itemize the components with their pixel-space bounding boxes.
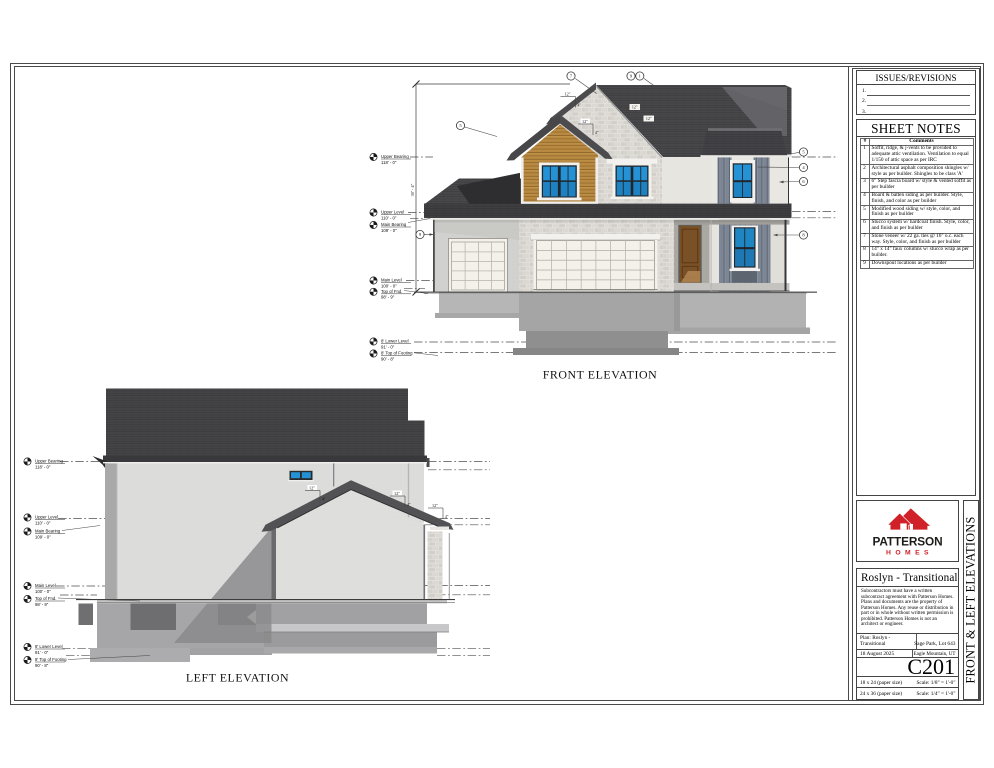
svg-text:Upper Level: Upper Level bbox=[35, 515, 58, 520]
svg-text:91' - 0": 91' - 0" bbox=[381, 344, 395, 349]
svg-text:109' - 0": 109' - 0" bbox=[381, 228, 397, 233]
svg-text:12": 12" bbox=[565, 91, 571, 96]
svg-text:100' - 0": 100' - 0" bbox=[35, 589, 51, 594]
svg-text:8' Top of Footing: 8' Top of Footing bbox=[381, 351, 413, 356]
svg-text:100' - 0": 100' - 0" bbox=[381, 283, 397, 288]
svg-text:12": 12" bbox=[632, 105, 638, 110]
svg-text:FRONT ELEVATION: FRONT ELEVATION bbox=[543, 368, 658, 382]
svg-text:118' - 0": 118' - 0" bbox=[35, 464, 51, 469]
svg-text:Top of Fnd.: Top of Fnd. bbox=[381, 289, 403, 294]
svg-text:4": 4" bbox=[407, 503, 411, 507]
svg-text:90' - 8": 90' - 8" bbox=[381, 356, 395, 361]
svg-text:110' - 0": 110' - 0" bbox=[35, 520, 51, 525]
svg-text:4": 4" bbox=[322, 498, 326, 502]
svg-text:98' - 9": 98' - 9" bbox=[35, 602, 49, 607]
svg-text:98' - 9": 98' - 9" bbox=[381, 295, 395, 300]
svg-text:Upper Level: Upper Level bbox=[381, 210, 404, 215]
svg-text:110' - 0": 110' - 0" bbox=[381, 215, 397, 220]
svg-text:12": 12" bbox=[394, 491, 400, 496]
svg-text:8' Top of Footing: 8' Top of Footing bbox=[35, 657, 67, 662]
svg-text:8' Lower Level: 8' Lower Level bbox=[35, 644, 63, 649]
svg-text:LEFT ELEVATION: LEFT ELEVATION bbox=[186, 671, 289, 685]
svg-text:12": 12" bbox=[582, 119, 588, 124]
svg-text:Top of Fnd.: Top of Fnd. bbox=[35, 596, 57, 601]
svg-text:4": 4" bbox=[445, 515, 449, 519]
svg-text:118' - 0": 118' - 0" bbox=[381, 160, 397, 165]
svg-text:4": 4" bbox=[595, 131, 599, 135]
svg-text:Main Bearing: Main Bearing bbox=[35, 529, 61, 534]
svg-text:8' Lower Level: 8' Lower Level bbox=[381, 339, 409, 344]
svg-text:90' - 8": 90' - 8" bbox=[35, 663, 49, 668]
svg-text:Main Level: Main Level bbox=[381, 278, 402, 283]
svg-text:109' - 0": 109' - 0" bbox=[35, 534, 51, 539]
svg-text:Upper Bearing: Upper Bearing bbox=[381, 154, 409, 159]
svg-text:91' - 0": 91' - 0" bbox=[35, 650, 49, 655]
svg-text:12": 12" bbox=[432, 503, 438, 508]
svg-text:12": 12" bbox=[309, 485, 315, 490]
svg-text:4": 4" bbox=[578, 104, 582, 108]
svg-text:Main Level: Main Level bbox=[35, 583, 56, 588]
svg-text:30' - 4": 30' - 4" bbox=[410, 183, 415, 196]
svg-text:Main Bearing: Main Bearing bbox=[381, 222, 407, 227]
svg-text:Upper Bearing: Upper Bearing bbox=[35, 459, 63, 464]
svg-text:12": 12" bbox=[646, 116, 652, 121]
